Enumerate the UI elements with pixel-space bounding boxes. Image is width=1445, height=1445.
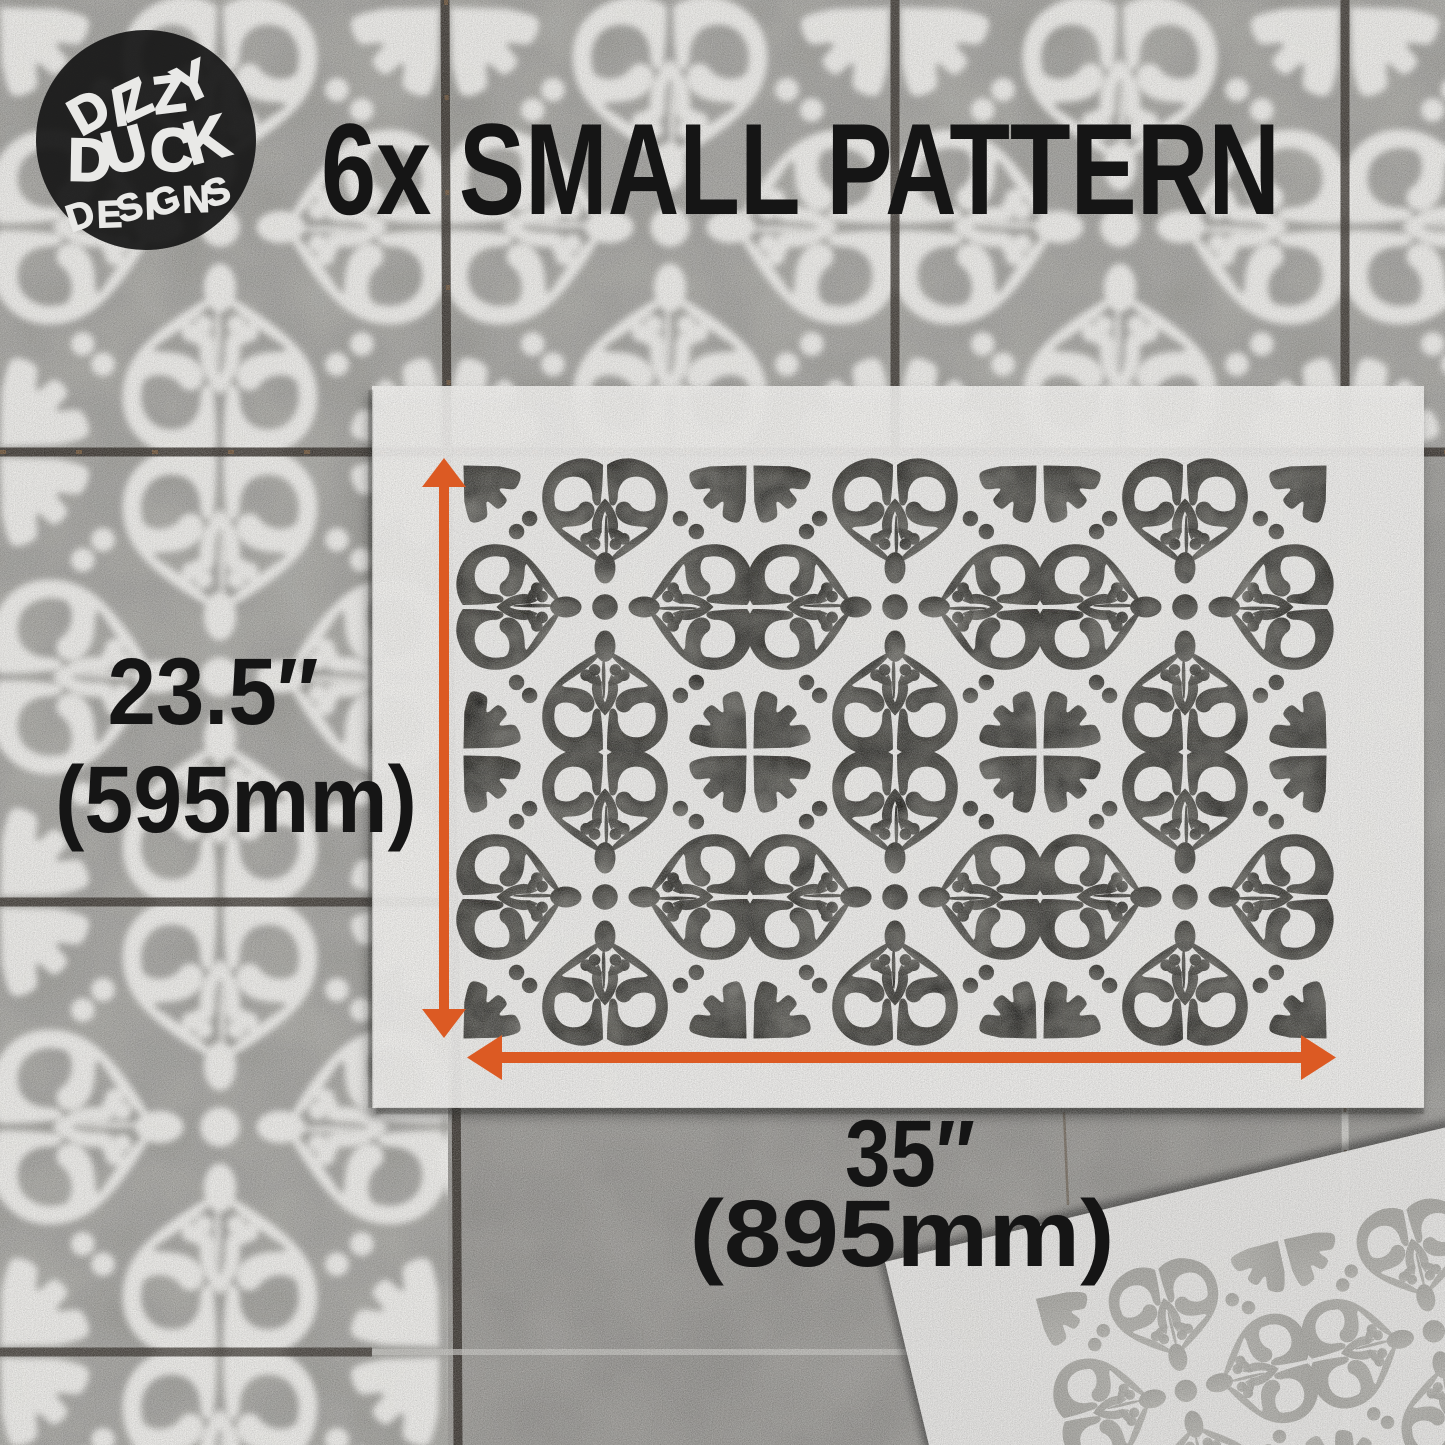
svg-text:6x SMALL PATTERN: 6x SMALL PATTERN	[321, 96, 1280, 242]
svg-text:(895mm): (895mm)	[690, 1181, 1115, 1287]
svg-text:(595mm): (595mm)	[55, 747, 417, 853]
svg-text:23.5″: 23.5″	[108, 639, 319, 745]
